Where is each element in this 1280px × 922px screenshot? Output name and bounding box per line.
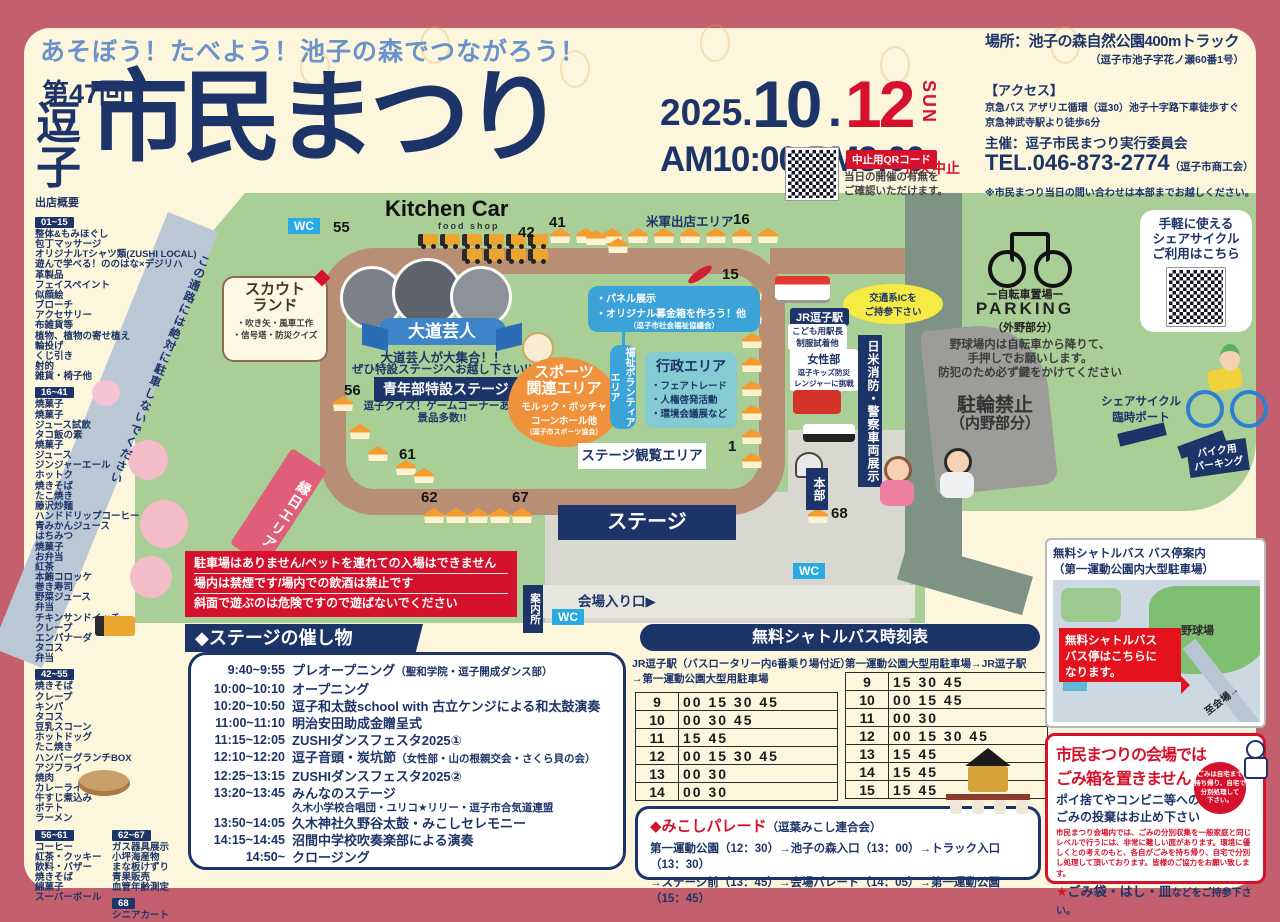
shuttle-row: 915 30 45 (846, 673, 1048, 691)
tent-icon (680, 228, 700, 243)
kitchen-car-icon (484, 234, 504, 246)
share-port-label: シェアサイクル 臨時ポート (1096, 393, 1186, 425)
baseball-field-label: 野球場 (1181, 622, 1214, 638)
date-year: 2025. (660, 92, 753, 134)
trash-footer-main: ごみ袋・はし・皿 (1068, 884, 1172, 899)
qr-note: 当日の開催の有無を ご確認いただけます。 (844, 170, 948, 198)
share-cycle-line: ご利用はこちら (1140, 247, 1252, 262)
vendor-item: たこ焼き (35, 743, 187, 753)
shuttle-row: 1000 30 45 (636, 711, 838, 729)
tent-icon (742, 429, 762, 444)
admin-line: ・人権啓発活動 (651, 392, 731, 406)
stage-schedule-header: ◆ステージの催し物 (185, 624, 423, 652)
bicycle-rule-line: 手押しでお願いします。 (935, 352, 1125, 366)
trash-title: 市民まつりの会場では (1056, 741, 1255, 765)
schedule-row: 10:20~10:50逗子和太鼓school with 古立ケンジによる和太鼓演… (197, 698, 613, 715)
schedule-sub: 久木小学校合唱団・ユリコ★リリー・逗子市合気道連盟 (292, 802, 613, 815)
kitchen-car-icon (462, 249, 482, 261)
shuttle-hour: 14 (846, 763, 889, 781)
tel-org: （逗子市商工会） (1170, 161, 1254, 173)
tent-icon (808, 508, 828, 523)
vendor-item: 野菜ジュース (35, 593, 187, 603)
schedule-row: 12:10~12:20逗子音頭・炭坑節（女性部・山の根親交会・さくら貝の会） (197, 749, 613, 768)
cyclist-illustration (1186, 338, 1262, 428)
shuttle-caption-line: →第一運動公園大型用駐車場 (632, 671, 851, 686)
scout-line: ・信号塔・防災クイズ (224, 329, 326, 341)
trash-circle-line: ごみは自宅まで (1194, 771, 1246, 780)
share-port-line: シェアサイクル (1096, 393, 1186, 409)
fire-truck-icon (793, 390, 841, 414)
info-desk-badge: 案内所 (523, 585, 543, 633)
trash-footer: ★ごみ袋・はし・皿などをご持参下さい。 (1056, 881, 1255, 919)
schedule-name: 逗子音頭・炭坑節（女性部・山の根親交会・さくら貝の会） (292, 749, 596, 768)
vendor-item: タコス (35, 644, 187, 654)
us-military-area-label: 米軍出店エリア (646, 211, 734, 230)
vendor-item: ラーメン (35, 814, 187, 824)
jr-station-note: こども用駅長 制服試着他 (788, 324, 847, 350)
shuttle-minutes: 00 30 45 (679, 711, 838, 729)
kitchen-car-icon (418, 234, 438, 246)
sports-line: モルック・ボッチャ (508, 399, 620, 413)
shuttle-row: 1300 30 (636, 765, 838, 783)
panel-bubble: ・パネル展示 ・オリジナル募金箱を作ろう！他 （逗子市社会福祉協議会） (588, 286, 760, 332)
schedule-time: 13:20~13:45 (197, 785, 285, 802)
host-line: 主催：逗子市民まつり実行委員会 (985, 132, 1188, 152)
tent-icon (368, 446, 388, 461)
shuttle-hour: 9 (636, 693, 679, 711)
stall-number: 67 (512, 489, 529, 506)
wc-badge: WC (552, 609, 584, 625)
ic-card-line: 交通系ICを (843, 290, 943, 304)
schedule-row: 10:00~10:10オープニング (197, 681, 613, 698)
cancel-qr-code (786, 148, 838, 200)
shuttle-hour: 10 (846, 691, 889, 709)
bicycle-rule-line: 野球場内は自転車から降りて、 (935, 338, 1125, 352)
schedule-time: 14:50~ (197, 849, 285, 866)
date-dow: SUN (918, 80, 939, 144)
parking-label-en: PARKING (970, 299, 1080, 319)
tel-text: TEL.046-873-2774 (985, 150, 1170, 175)
tent-icon (742, 357, 762, 372)
stage-schedule-box: 9:40~9:55プレオープニング（聖和学院・逗子開成ダンス部）10:00~10… (188, 652, 626, 870)
bus-map-graphic: 野球場 無料シャトルバス バス停はこちらに なります。 至会場→ (1053, 580, 1260, 722)
schedule-name: オープニング (292, 681, 369, 698)
parking-note: （外野部分） (970, 319, 1080, 335)
warning-line: 斜面で遊ぶのは危険ですので遊ばないでください (194, 594, 508, 613)
trash-circle-line: 下さい。 (1194, 797, 1246, 806)
stall-number: 68 (831, 505, 848, 522)
schedule-time: 11:00~11:10 (197, 715, 285, 732)
vendor-item: お弁当 (35, 553, 187, 563)
place-line: 場所：池子の森自然公園400mトラック (985, 30, 1239, 51)
shuttle-minutes: 00 30 (679, 765, 838, 783)
date-month: 10 (752, 66, 819, 142)
bus-map-title: 無料シャトルバス バス停案内 (1053, 545, 1258, 561)
shuttle-table-left: 900 15 30 451000 30 451115 451200 15 30 … (635, 692, 838, 801)
kitchen-car-icon (484, 249, 504, 261)
tent-icon (350, 424, 370, 439)
star-icon: ★ (1056, 884, 1068, 899)
schedule-row: 12:25~13:15ZUSHIダンスフェスタ2025② (197, 768, 613, 785)
schedule-name: ZUSHIダンスフェスタ2025① (292, 732, 462, 749)
stall-number: 15 (722, 266, 739, 283)
shuttle-hour: 14 (636, 783, 679, 801)
stall-number: 62 (421, 489, 438, 506)
hq-badge: 本部 (806, 468, 828, 510)
fire-engine-icon (775, 276, 830, 300)
schedule-name: ZUSHIダンスフェスタ2025② (292, 768, 462, 785)
trash-circle-note: ごみは自宅まで 持ち帰り、自宅で 分別処理して 下さい。 (1194, 762, 1246, 814)
stage-box: ステージ (558, 505, 736, 540)
access-title: 【アクセス】 (985, 80, 1063, 99)
shuttle-hour: 11 (636, 729, 679, 747)
food-shop-label: food shop (438, 221, 500, 231)
tent-icon (512, 508, 532, 523)
shuttle-hour: 12 (846, 727, 889, 745)
cotton-candy-icon (92, 380, 120, 406)
admin-line: ・フェアトレード (651, 378, 731, 392)
schedule-row: 11:00~11:10明治安田助成金贈呈式 (197, 715, 613, 732)
stage-viewing-label: ステージ観覧エリア (578, 443, 706, 469)
contact-note: ※市民まつり当日の問い合わせは本部までお越しください。 (985, 184, 1255, 199)
panel-line: ・パネル展示 (596, 290, 752, 305)
schedule-time: 10:00~10:10 (197, 681, 285, 698)
mikoshi-route-line: →ステージ前（13：45）→会場パレード（14：05）→第一運動公園（15：45… (650, 874, 1026, 906)
bus-stop-map-box: 無料シャトルバス バス停案内 （第一運動公園内大型駐車場） 野球場 無料シャトル… (1045, 538, 1266, 728)
share-port-line: 臨時ポート (1096, 409, 1186, 425)
mikoshi-title: ◆みこしパレード (650, 818, 767, 835)
tent-icon (468, 508, 488, 523)
shuttle-hour: 15 (846, 781, 889, 799)
schedule-time: 14:15~14:45 (197, 832, 285, 849)
scout-land-box: スカウトランド ・吹き矢・風車工作 ・信号塔・防災クイズ (222, 276, 328, 362)
stall-number: 16 (733, 211, 750, 228)
vendor-groups-main: 01~15整体&もみほぐし包丁マッサージオリジナルTシャツ類(ZUSHI LOC… (35, 212, 187, 825)
page-title: 市民まつり (88, 68, 558, 168)
bicycle-rules: 野球場内は自転車から降りて、 手押しでお願いします。 防犯のため必ず鍵をかけてく… (935, 338, 1125, 380)
stall-number: 1 (728, 438, 736, 455)
wc-badge: WC (793, 563, 825, 579)
schedule-name: プレオープニング（聖和学院・逗子開成ダンス部） (292, 662, 553, 681)
shuttle-minutes: 15 45 (679, 729, 838, 747)
stall-number: 56 (344, 382, 361, 399)
park-shape (1061, 588, 1121, 622)
vendor-item: 弁当 (35, 654, 187, 664)
kitchen-car-icon (506, 249, 526, 261)
kitchen-car-icon (440, 234, 460, 246)
tent-icon (732, 228, 752, 243)
schedule-name: クロージング (292, 849, 370, 866)
no-parking-note: （内野部分） (930, 412, 1060, 433)
police-car-icon (803, 424, 855, 442)
sports-title: スポーツ (534, 364, 594, 381)
panel-line: ・オリジナル募金箱を作ろう！他 (596, 305, 752, 320)
shuttle-minutes: 00 15 45 (889, 691, 1048, 709)
tent-icon (742, 453, 762, 468)
kitchen-car-icon (462, 234, 482, 246)
shuttle-row: 1400 30 (636, 783, 838, 801)
schedule-rows: 9:40~9:55プレオープニング（聖和学院・逗子開成ダンス部）10:00~10… (197, 662, 613, 866)
warning-line: 場内は禁煙です/場内での飲酒は禁止です (194, 574, 508, 594)
shuttle-hour: 9 (846, 673, 889, 691)
takoyaki-icon (78, 770, 130, 796)
shuttle-caption-right: 第一運動公園大型用駐車場→JR逗子駅 (845, 656, 1026, 671)
schedule-note: （聖和学院・逗子開成ダンス部） (395, 666, 552, 678)
shuttle-row: 1200 15 30 45 (636, 747, 838, 765)
shuttle-minutes: 00 15 30 45 (889, 727, 1048, 745)
schedule-time: 12:10~12:20 (197, 749, 285, 768)
tent-icon (742, 333, 762, 348)
children-illustration (878, 448, 998, 568)
ic-card-note: 交通系ICを ご持参下さい (843, 284, 943, 324)
vendor-item: シニアカート (112, 911, 187, 921)
vendor-range-badge: 56~61 (35, 830, 74, 841)
stall-number: 55 (333, 219, 350, 236)
trash-circle-line: 持ち帰り、自宅で (1194, 780, 1246, 789)
entrance-label: 会場入り口▶ (578, 590, 656, 610)
schedule-name: みんなのステージ (292, 785, 396, 802)
vendor-list: 出店概要 01~15整体&もみほぐし包丁マッサージオリジナルTシャツ類(ZUSH… (35, 194, 187, 922)
shuttle-hour: 12 (636, 747, 679, 765)
schedule-row: 13:50~14:05久木神社久野谷太鼓・みこしセレモニー (197, 815, 613, 832)
welfare-area-bubble: 福祉ボランティアエリア (610, 345, 636, 429)
stall-number: 41 (549, 214, 566, 231)
tent-icon (742, 405, 762, 420)
food-truck-icon (95, 616, 135, 636)
sports-title: 関連エリア (526, 380, 601, 397)
sports-area-cloud: スポーツ関連エリア モルック・ボッチャ コーンホール他 （逗子市スポーツ協会） (508, 357, 620, 447)
vendor-range-badge: 01~15 (35, 217, 74, 228)
tent-icon (654, 228, 674, 243)
warning-box: 駐車場はありません/ペットを連れての入場はできません 場内は禁煙です/場内での飲… (185, 551, 517, 617)
place-address: （逗子市池子字花ノ瀬60番1号） (1090, 52, 1244, 67)
access-line-2: 京急神武寺駅より徒歩6分 (985, 114, 1100, 129)
admin-area-box: 行政エリア ・フェアトレード ・人権啓発活動 ・環境会議展など (645, 352, 737, 428)
bus-stop-callout-line: なります。 (1065, 664, 1175, 680)
qr-note-line: ご確認いただけます。 (844, 184, 948, 198)
womens-line: レンジャーに挑戦 (794, 378, 854, 389)
vendor-overview-title: 出店概要 (35, 194, 187, 210)
shuttle-row: 1000 15 45 (846, 691, 1048, 709)
sports-line: コーンホール他 (508, 413, 620, 427)
trash-body: 市民まつり会場内では、ごみの分別収集を一般家庭と同じレベルで行うには、非常に難し… (1056, 828, 1256, 879)
shuttle-header: 無料シャトルバス時刻表 (640, 624, 1040, 651)
panel-org: （逗子市社会福祉協議会） (596, 320, 752, 331)
schedule-time: 11:15~12:05 (197, 732, 285, 749)
festival-poster: { "header": { "subtitle": "あそぼう！たべよう！池子の… (0, 0, 1280, 904)
bus-stop-callout-line: 無料シャトルバス (1065, 632, 1175, 648)
bicycle-rule-line: 防犯のため必ず鍵をかけてください (935, 366, 1125, 380)
womens-section-badge: 女性部 逗子キッズ防災 レンジャーに挑戦 (790, 349, 858, 391)
schedule-time: 9:40~9:55 (197, 662, 285, 681)
tent-icon (490, 508, 510, 523)
vendor-range-badge: 42~55 (35, 669, 74, 680)
shuttle-caption-line: JR逗子駅（バスロータリー内6番乗り場付近） (632, 656, 851, 671)
bus-stop-callout-line: バス停はこちらに (1065, 648, 1175, 664)
shuttle-hour: 10 (636, 711, 679, 729)
bus-map-title: （第一運動公園内大型駐車場） (1053, 561, 1258, 577)
vendor-range-badge: 62~67 (112, 830, 151, 841)
scout-title: スカウト (245, 281, 305, 298)
kitchen-car-icon (528, 249, 548, 261)
boy-illustration (1244, 740, 1266, 780)
shuttle-minutes: 15 30 45 (889, 673, 1048, 691)
scout-title: ランド (252, 297, 297, 314)
shuttle-row: 900 15 30 45 (636, 693, 838, 711)
womens-line: 逗子キッズ防災 (794, 367, 854, 378)
share-cycle-qr-code (1167, 268, 1225, 326)
share-cycle-line: 手軽に使える (1140, 217, 1252, 232)
wc-badge: WC (288, 218, 320, 234)
bicycle-parking-icon (988, 232, 1064, 284)
schedule-time: 10:20~10:50 (197, 698, 285, 715)
shuttle-hour: 13 (846, 745, 889, 763)
date-day: 12 (845, 66, 912, 142)
mikoshi-illustration (938, 748, 1038, 818)
schedule-name: 逗子和太鼓school with 古立ケンジによる和太鼓演奏 (292, 698, 600, 715)
schedule-name: 沼間中学校吹奏楽部による演奏 (292, 832, 474, 849)
youth-stage-line: 景品多数!! (352, 410, 532, 425)
vendor-range-badge: 16~41 (35, 387, 74, 398)
tent-icon (758, 228, 778, 243)
trash-circle-line: 分別処理して (1194, 789, 1246, 798)
schedule-time: 13:50~14:05 (197, 815, 285, 832)
stall-number: 61 (399, 446, 416, 463)
tent-icon (424, 508, 444, 523)
vendor-item: はちみつ (35, 532, 187, 542)
mikoshi-route-line: 第一運動公園（12：30）→池子の森入口（13：00）→トラック入口（13：30… (650, 840, 1026, 872)
vendor-item: 血管年齢測定 (112, 883, 187, 893)
qr-label-tag: 中止用QRコード (846, 150, 937, 169)
shuttle-row: 1115 45 (636, 729, 838, 747)
shuttle-minutes: 00 15 30 45 (679, 693, 838, 711)
tel-number: TEL.046-873-2774（逗子市商工会） (985, 150, 1254, 176)
scout-line: ・吹き矢・風車工作 (224, 317, 326, 329)
share-cycle-box: 手軽に使える シェアサイクル ご利用はこちら (1140, 210, 1252, 332)
share-cycle-line: シェアサイクル (1140, 232, 1252, 247)
shuttle-minutes: 00 15 30 45 (679, 747, 838, 765)
stall-number: 42 (518, 224, 535, 241)
schedule-row: 13:20~13:45みんなのステージ (197, 785, 613, 802)
womens-title: 女性部 (794, 351, 854, 367)
shuttle-hour: 11 (846, 709, 889, 727)
daidogei-ribbon: 大道芸人 (378, 318, 506, 345)
schedule-note: （女性部・山の根親交会・さくら貝の会） (396, 753, 596, 765)
bus-stop-callout: 無料シャトルバス バス停はこちらに なります。 (1059, 628, 1181, 682)
callout-pointer (1181, 676, 1199, 694)
kitchen-car-title: Kitchen Car (385, 196, 508, 222)
title-zushi: 逗子 (36, 102, 86, 190)
schedule-row: 14:15~14:45沼間中学校吹奏楽部による演奏 (197, 832, 613, 849)
shuttle-hour: 13 (636, 765, 679, 783)
trash-notice-box: 市民まつりの会場では ごみ箱を置きません ごみは自宅まで 持ち帰り、自宅で 分別… (1045, 733, 1266, 884)
schedule-name: 久木神社久野谷太鼓・みこしセレモニー (292, 815, 526, 832)
tent-icon (706, 228, 726, 243)
shuttle-row: 1200 15 30 45 (846, 727, 1048, 745)
tent-icon (414, 468, 434, 483)
ic-card-line: ご持参下さい (843, 304, 943, 318)
shuttle-minutes: 00 30 (679, 783, 838, 801)
schedule-row: 11:15~12:05ZUSHIダンスフェスタ2025① (197, 732, 613, 749)
date-dot: . (828, 80, 842, 138)
sports-org: （逗子市スポーツ協会） (508, 427, 620, 437)
mikoshi-org: （逗葉みこし連合会） (767, 822, 882, 834)
admin-title: 行政エリア (651, 356, 731, 376)
warning-line: 駐車場はありません/ペットを連れての入場はできません (194, 554, 508, 574)
schedule-time: 12:25~13:15 (197, 768, 285, 785)
jr-note-line: こども用駅長 (792, 325, 843, 337)
shuttle-minutes: 00 30 (889, 709, 1048, 727)
vendor-item: スーパーボール (35, 893, 106, 903)
shuttle-caption-left: JR逗子駅（バスロータリー内6番乗り場付近） →第一運動公園大型用駐車場 (632, 656, 851, 686)
tent-icon (446, 508, 466, 523)
schedule-row: 14:50~クロージング (197, 849, 613, 866)
vendor-item: くじ引き (35, 352, 187, 362)
tent-icon (742, 381, 762, 396)
schedule-name: 明治安田助成金贈呈式 (292, 715, 422, 732)
schedule-row: 9:40~9:55プレオープニング（聖和学院・逗子開成ダンス部） (197, 662, 613, 681)
shuttle-row: 1100 30 (846, 709, 1048, 727)
jr-note-line: 制服試着他 (792, 337, 843, 349)
admin-line: ・環境会議展など (651, 406, 731, 420)
tent-icon (628, 228, 648, 243)
access-line-1: 京急バス アザリエ循環（逗30）池子十字路下車徒歩すぐ (985, 99, 1239, 114)
vendor-col-left: 56~61コーヒー紅茶・クッキー飲料・バザー焼きそば綿菓子スーパーボール (35, 825, 106, 904)
vendor-col-right: 62~67ガス器具展示小坪海産物まな板けずり青果販売血管年齢測定68シニアカート (112, 825, 187, 922)
qr-note-line: 当日の開催の有無を (844, 170, 948, 184)
